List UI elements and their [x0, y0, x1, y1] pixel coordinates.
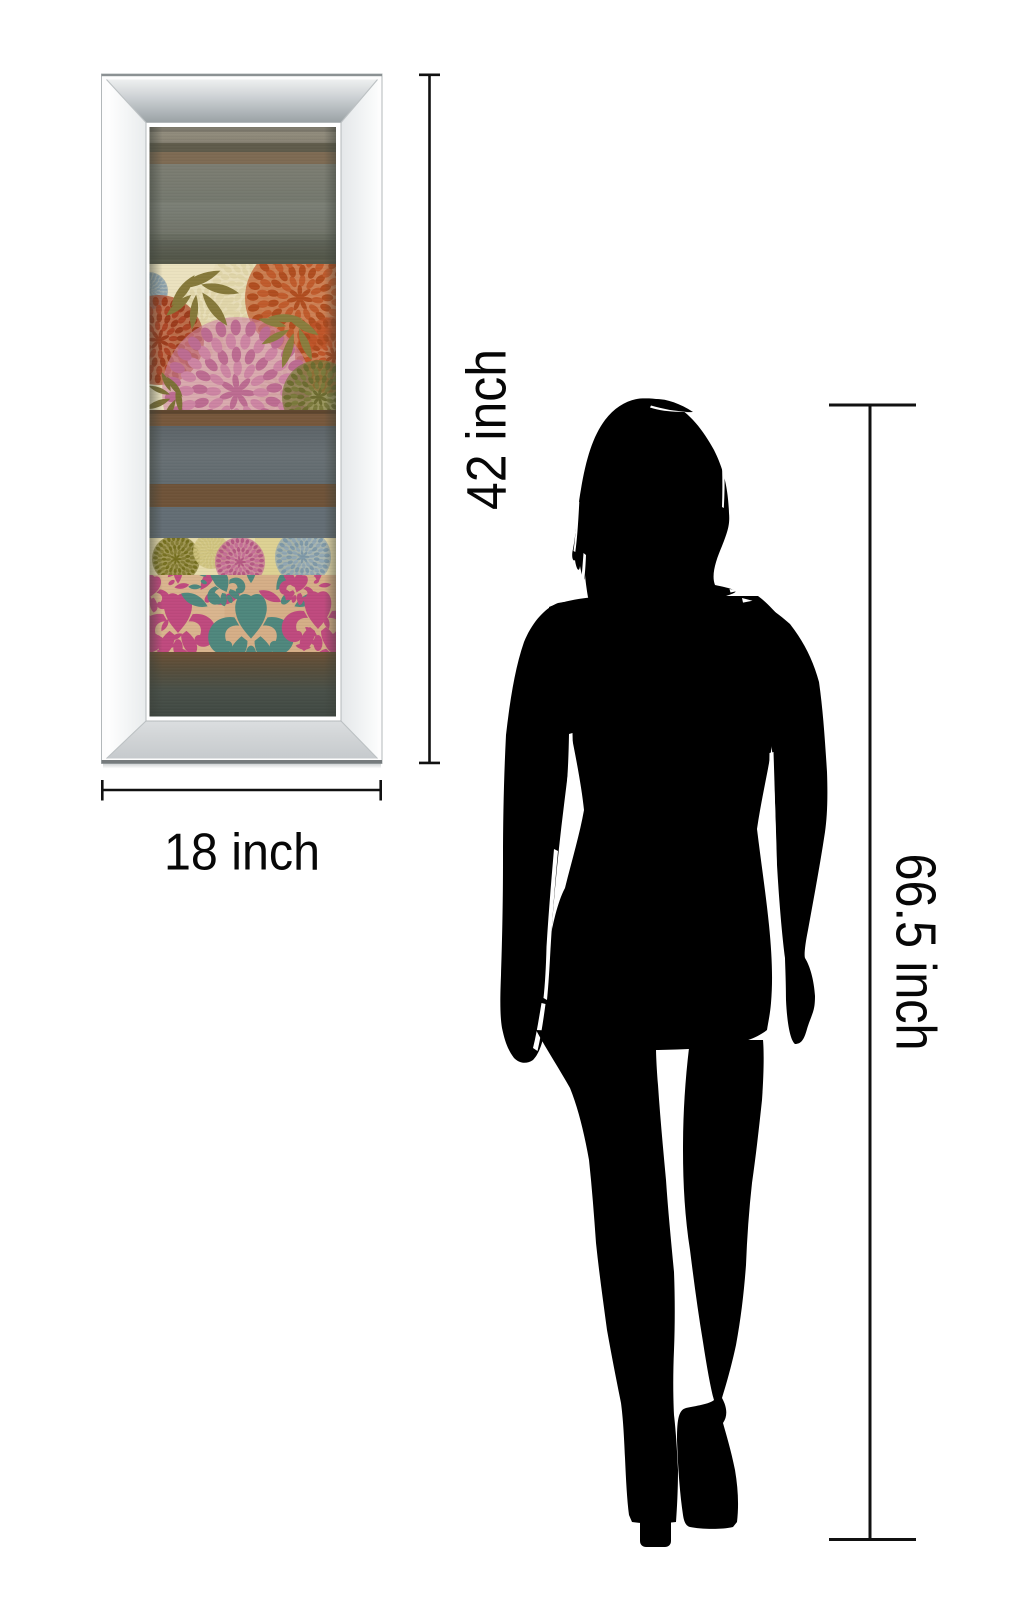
- svg-text:42 inch: 42 inch: [455, 349, 518, 510]
- svg-text:18 inch: 18 inch: [164, 824, 320, 882]
- svg-text:66.5 inch: 66.5 inch: [884, 854, 948, 1051]
